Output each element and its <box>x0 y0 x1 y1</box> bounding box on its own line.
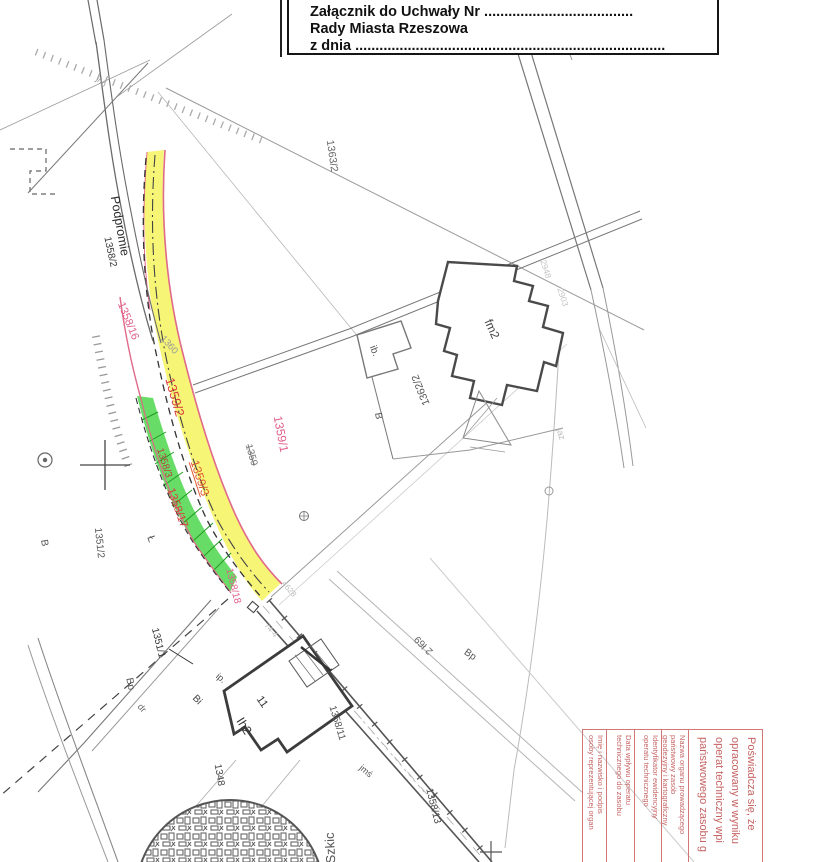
attachment-line-1: Załącznik do Uchwały Nr ................… <box>310 4 717 21</box>
geodetic-stamp-table: Poświadcza się, że opracowany w wyniku o… <box>582 729 763 862</box>
stamp-identifier-cell: Identyfikator ewidencyjny operatu techni… <box>634 730 661 862</box>
embankment-ticks-left <box>96 336 130 470</box>
attachment-header-box: Załącznik do Uchwały Nr ................… <box>287 0 719 55</box>
scan-page-edge <box>280 0 282 57</box>
gate-symbol <box>247 601 258 612</box>
grid-cross-bottom <box>480 841 502 862</box>
stamp-signature-cell: Imię i nazwisko i podpis osoby reprezent… <box>582 730 606 862</box>
detail-inset-circle <box>136 800 324 862</box>
buildings <box>136 262 563 862</box>
land-use-label-b-left: B <box>38 539 50 547</box>
grid-cross <box>80 440 130 490</box>
stamp-certification-text: Poświadcza się, że opracowany w wyniku o… <box>688 730 762 862</box>
land-use-label-bp-left: Bp <box>123 677 136 691</box>
scanned-cadastral-map-page: Podpromie 1358/2 1363/2 1358/16 1360 135… <box>0 0 824 862</box>
highlight-strips <box>137 150 281 601</box>
building-ib-outline <box>357 321 411 378</box>
stamp-authority-cell: Nazwa organu prowadzącego państwowy zasó… <box>661 730 688 862</box>
attachment-line-3: z dnia .................................… <box>310 38 717 55</box>
sketch-title-label: Szkic <box>322 832 339 862</box>
geodetic-stamp: Poświadcza się, że opracowany w wyniku o… <box>582 729 763 862</box>
land-use-label-b-mid: B <box>372 412 384 420</box>
attachment-line-2: Rady Miasta Rzeszowa <box>310 21 717 38</box>
stamp-date-cell: Data wpływu operatu technicznego do zaso… <box>606 730 634 862</box>
